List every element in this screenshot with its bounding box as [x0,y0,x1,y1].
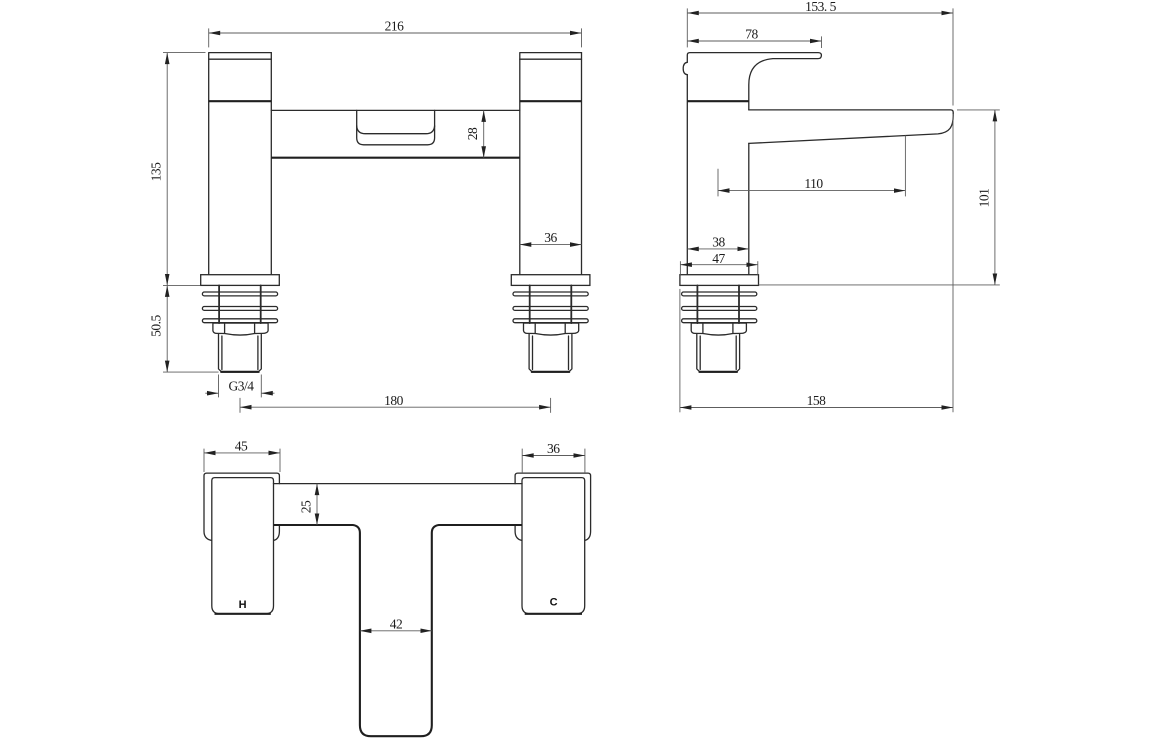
svg-text:42: 42 [390,616,403,631]
svg-text:50.5: 50.5 [149,314,164,336]
svg-text:158: 158 [807,393,827,408]
svg-text:H: H [239,599,247,611]
svg-text:25: 25 [299,500,314,513]
svg-text:135: 135 [149,162,164,182]
svg-text:216: 216 [385,19,405,34]
svg-text:45: 45 [235,439,248,454]
svg-text:C: C [550,596,558,608]
svg-text:78: 78 [745,27,758,42]
svg-text:110: 110 [804,176,823,191]
svg-text:38: 38 [712,234,725,249]
svg-text:G3/4: G3/4 [229,378,255,393]
svg-text:28: 28 [465,127,480,140]
svg-text:153. 5: 153. 5 [805,0,837,14]
svg-text:47: 47 [712,251,725,266]
svg-text:180: 180 [384,393,404,408]
svg-text:36: 36 [547,441,560,456]
svg-text:36: 36 [544,230,557,245]
svg-text:101: 101 [977,189,992,208]
